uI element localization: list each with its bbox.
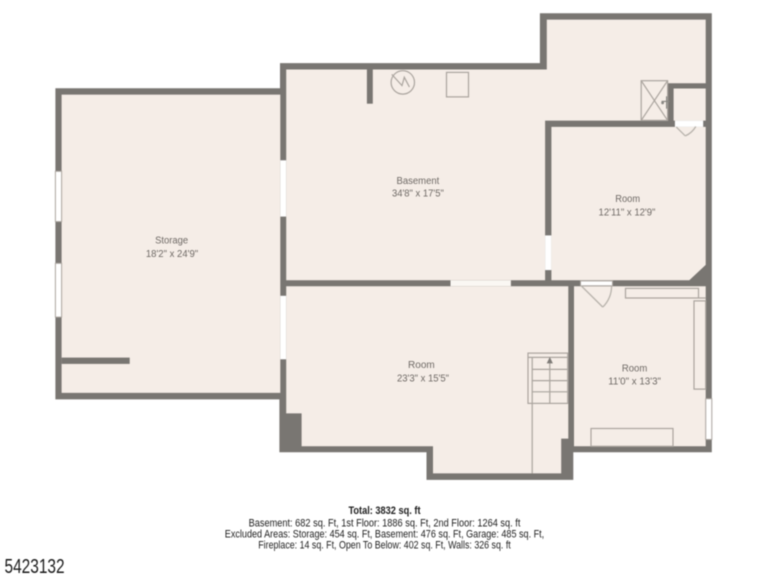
svg-text:Room: Room xyxy=(408,360,435,371)
svg-text:11'0" x 13'3": 11'0" x 13'3" xyxy=(608,377,661,388)
svg-text:Storage: Storage xyxy=(155,236,188,247)
svg-text:5423132: 5423132 xyxy=(5,556,65,576)
svg-text:Room: Room xyxy=(615,194,640,205)
svg-text:Fireplace: 14 sq. Ft, Open To: Fireplace: 14 sq. Ft, Open To Below: 402… xyxy=(258,540,511,552)
svg-text:Basement: 682 sq. Ft, 1st Floo: Basement: 682 sq. Ft, 1st Floor: 1886 sq… xyxy=(249,518,521,530)
svg-text:23'3" x 15'5": 23'3" x 15'5" xyxy=(397,373,450,384)
svg-text:12'11" x 12'9": 12'11" x 12'9" xyxy=(599,208,656,219)
svg-text:34'8" x 17'5": 34'8" x 17'5" xyxy=(392,189,444,200)
svg-text:18'2" x 24'9": 18'2" x 24'9" xyxy=(146,249,199,260)
svg-text:Basement: Basement xyxy=(397,176,440,187)
svg-text:Total: 3832 sq. ft: Total: 3832 sq. ft xyxy=(348,505,420,517)
svg-text:Room: Room xyxy=(622,364,647,375)
